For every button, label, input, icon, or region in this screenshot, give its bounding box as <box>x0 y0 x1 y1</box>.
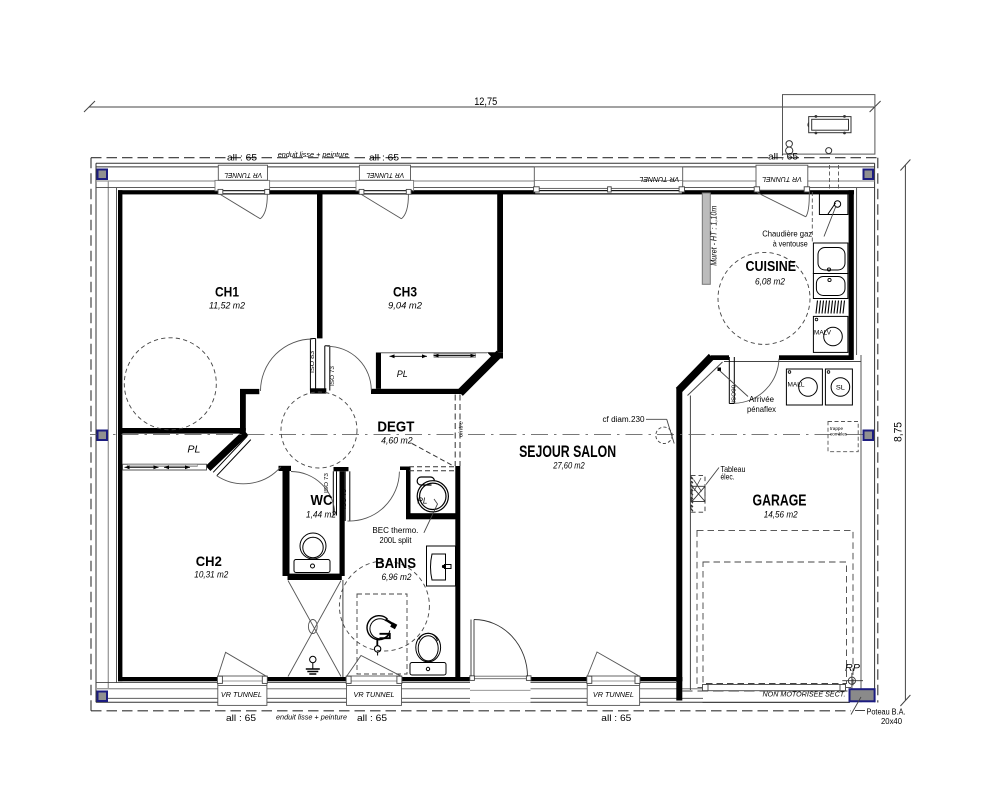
svg-text:8,75: 8,75 <box>893 422 905 442</box>
svg-text:20x40: 20x40 <box>881 717 903 726</box>
svg-text:ISO 73: ISO 73 <box>330 366 336 386</box>
svg-text:all : 65: all : 65 <box>227 153 257 164</box>
svg-text:DEGT: DEGT <box>377 419 414 436</box>
svg-text:trappe: trappe <box>830 426 843 431</box>
svg-text:12,75: 12,75 <box>474 96 497 108</box>
svg-text:10,31 m2: 10,31 m2 <box>194 570 229 581</box>
svg-text:pénaflex: pénaflex <box>747 404 777 414</box>
svg-text:14,56 m2: 14,56 m2 <box>764 510 799 521</box>
svg-text:Muret - HT : 1,10m: Muret - HT : 1,10m <box>710 205 719 265</box>
svg-text:VR TUNNEL: VR TUNNEL <box>354 692 395 699</box>
svg-text:9,04 m2: 9,04 m2 <box>388 301 423 312</box>
svg-text:4,60 m2: 4,60 m2 <box>381 436 413 447</box>
svg-text:Poteau B.A.: Poteau B.A. <box>867 708 906 717</box>
svg-text:VR TUNNEL: VR TUNNEL <box>224 171 262 178</box>
svg-text:all : 65: all : 65 <box>357 713 387 724</box>
svg-text:VR TUNNEL: VR TUNNEL <box>221 692 262 699</box>
svg-text:BEC thermo.: BEC thermo. <box>372 525 418 535</box>
svg-text:MALL: MALL <box>788 382 806 389</box>
svg-text:all : 65: all : 65 <box>768 152 798 163</box>
svg-text:MALV: MALV <box>814 330 832 337</box>
svg-text:VR TUNNEL: VR TUNNEL <box>762 175 802 182</box>
svg-text:6,08 m2: 6,08 m2 <box>755 277 786 288</box>
svg-text:combles: combles <box>830 432 848 437</box>
svg-text:enduit lisse + peinture: enduit lisse + peinture <box>278 150 349 159</box>
svg-text:200L split: 200L split <box>380 535 413 545</box>
svg-text:1,44 m2: 1,44 m2 <box>306 510 337 521</box>
svg-text:11,52 m2: 11,52 m2 <box>209 301 246 312</box>
svg-text:VR TUNNEL: VR TUNNEL <box>366 171 404 178</box>
svg-text:ISO 83: ISO 83 <box>310 351 316 373</box>
svg-text:cf diam.230: cf diam.230 <box>603 415 646 424</box>
svg-text:27,60 m2: 27,60 m2 <box>552 461 585 472</box>
svg-text:CUISINE: CUISINE <box>746 258 797 275</box>
svg-text:PL: PL <box>187 444 200 456</box>
svg-text:PL: PL <box>397 369 408 379</box>
svg-text:ISO 73: ISO 73 <box>342 489 348 509</box>
svg-text:CH2: CH2 <box>196 553 222 569</box>
svg-text:VR TUNNEL: VR TUNNEL <box>639 175 679 182</box>
svg-text:Chaudière gaz: Chaudière gaz <box>762 229 812 239</box>
svg-text:ISO 73: ISO 73 <box>324 473 330 493</box>
svg-text:6,96 m2: 6,96 m2 <box>382 572 413 583</box>
svg-text:WC: WC <box>311 493 333 509</box>
svg-text:all : 65: all : 65 <box>226 713 256 724</box>
svg-text:all : 65: all : 65 <box>601 713 631 724</box>
svg-text:SEJOUR SALON: SEJOUR SALON <box>519 443 616 461</box>
svg-text:SL: SL <box>836 385 846 392</box>
svg-text:GARAGE: GARAGE <box>753 493 807 510</box>
svg-text:NON MOTORISEE SECT.: NON MOTORISEE SECT. <box>763 689 846 698</box>
svg-text:VR TUNNEL: VR TUNNEL <box>593 692 634 699</box>
svg-text:RP: RP <box>845 663 860 674</box>
svg-text:BAINS: BAINS <box>375 555 416 572</box>
svg-text:élec.: élec. <box>721 471 735 481</box>
svg-text:à ventouse: à ventouse <box>773 239 808 249</box>
svg-text:ISO90: ISO90 <box>732 385 738 403</box>
svg-text:CH3: CH3 <box>393 284 417 300</box>
svg-text:cintre: cintre <box>459 421 465 437</box>
svg-text:CH1: CH1 <box>215 284 239 300</box>
svg-text:Arrivée: Arrivée <box>749 394 774 404</box>
svg-text:enduit lisse + peinture: enduit lisse + peinture <box>276 713 347 722</box>
svg-text:PL: PL <box>417 496 427 506</box>
svg-text:all : 65: all : 65 <box>369 153 399 164</box>
